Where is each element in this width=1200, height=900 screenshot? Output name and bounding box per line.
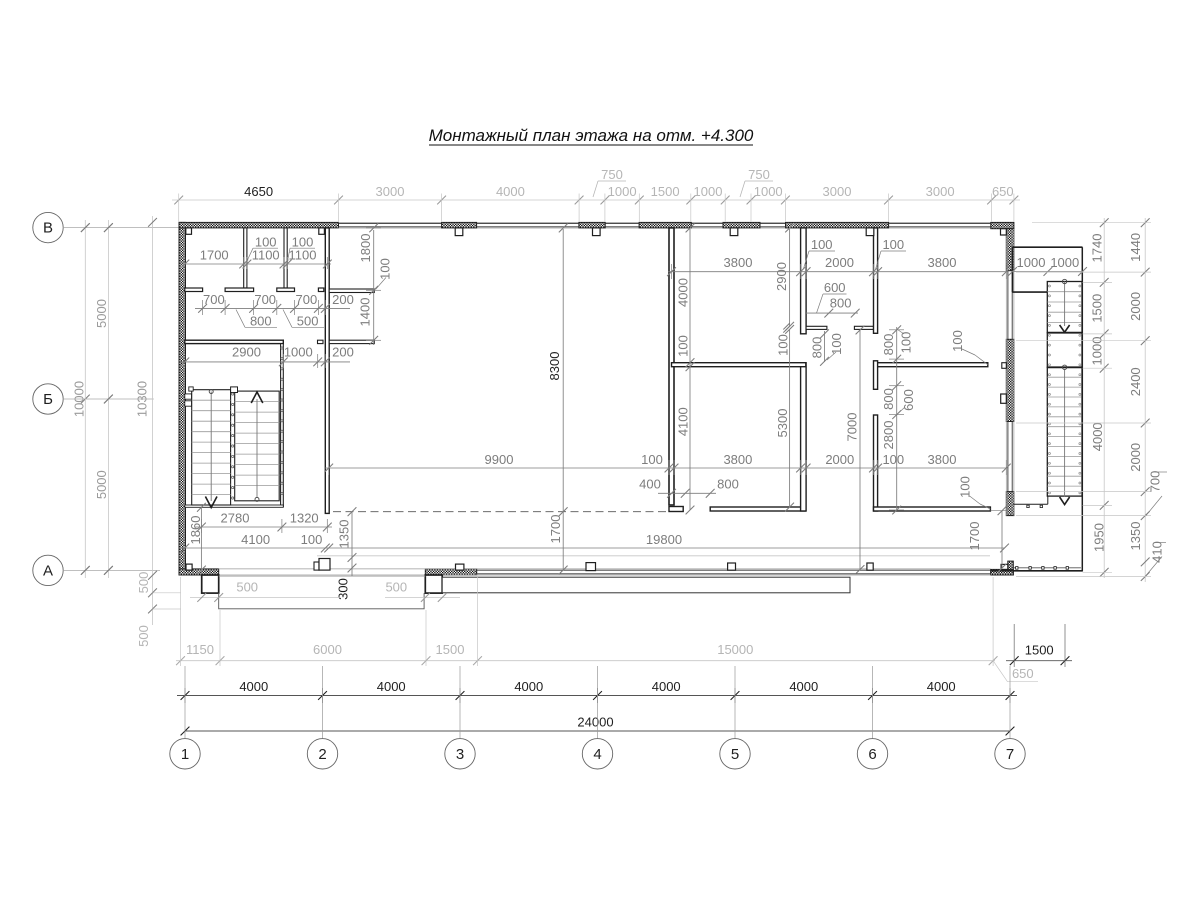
svg-text:100: 100 — [811, 237, 833, 252]
svg-text:3000: 3000 — [926, 184, 955, 199]
svg-text:2000: 2000 — [1128, 443, 1143, 472]
svg-text:1100: 1100 — [252, 248, 280, 263]
svg-text:1440: 1440 — [1128, 233, 1143, 262]
svg-text:2800: 2800 — [881, 421, 896, 450]
svg-text:4000: 4000 — [239, 679, 268, 694]
svg-text:1400: 1400 — [358, 298, 373, 327]
svg-text:700: 700 — [296, 292, 318, 307]
svg-text:800: 800 — [881, 334, 896, 356]
svg-text:4000: 4000 — [675, 278, 690, 307]
svg-text:5: 5 — [731, 746, 739, 763]
svg-text:1500: 1500 — [1090, 294, 1105, 323]
svg-text:1000: 1000 — [608, 184, 637, 199]
svg-text:10300: 10300 — [135, 381, 150, 417]
svg-text:2780: 2780 — [221, 510, 250, 525]
svg-text:8300: 8300 — [547, 352, 562, 381]
svg-text:1860: 1860 — [188, 516, 203, 545]
svg-text:500: 500 — [297, 314, 319, 329]
svg-text:3000: 3000 — [376, 184, 405, 199]
svg-text:4000: 4000 — [652, 679, 681, 694]
svg-text:3800: 3800 — [724, 255, 753, 270]
svg-text:9900: 9900 — [485, 452, 514, 467]
svg-text:700: 700 — [254, 292, 276, 307]
svg-text:100: 100 — [292, 235, 314, 250]
svg-text:1150: 1150 — [186, 642, 214, 657]
svg-text:4000: 4000 — [1090, 422, 1105, 451]
svg-text:1100: 1100 — [289, 248, 317, 263]
svg-text:1320: 1320 — [290, 510, 319, 525]
svg-text:4000: 4000 — [496, 184, 525, 199]
svg-text:3000: 3000 — [823, 184, 852, 199]
svg-text:6: 6 — [868, 746, 876, 763]
svg-text:1350: 1350 — [1128, 522, 1143, 551]
svg-text:400: 400 — [639, 477, 661, 492]
svg-text:200: 200 — [332, 292, 354, 307]
svg-text:700: 700 — [1148, 471, 1163, 493]
svg-text:А: А — [43, 562, 53, 579]
svg-text:5000: 5000 — [94, 470, 109, 499]
svg-text:1000: 1000 — [1017, 255, 1046, 270]
svg-text:100: 100 — [899, 332, 914, 354]
svg-text:1000: 1000 — [754, 184, 783, 199]
svg-text:600: 600 — [824, 280, 846, 295]
svg-text:15000: 15000 — [717, 642, 753, 657]
svg-text:750: 750 — [748, 167, 770, 182]
svg-text:4000: 4000 — [789, 679, 818, 694]
svg-text:800: 800 — [881, 388, 896, 410]
svg-text:200: 200 — [332, 344, 354, 359]
svg-text:100: 100 — [829, 333, 844, 355]
svg-text:100: 100 — [378, 258, 393, 280]
svg-text:100: 100 — [882, 237, 904, 252]
svg-text:1000: 1000 — [284, 344, 313, 359]
svg-text:4100: 4100 — [675, 407, 690, 436]
svg-text:Монтажный план этажа на отм. +: Монтажный план этажа на отм. +4.300 — [429, 126, 754, 145]
svg-text:1700: 1700 — [200, 248, 229, 263]
svg-text:800: 800 — [717, 477, 739, 492]
svg-text:1500: 1500 — [651, 184, 680, 199]
svg-text:1500: 1500 — [436, 642, 465, 657]
svg-text:7: 7 — [1006, 746, 1014, 763]
svg-text:4: 4 — [593, 746, 601, 763]
svg-text:100: 100 — [675, 335, 690, 357]
svg-text:1950: 1950 — [1092, 523, 1107, 552]
svg-text:4000: 4000 — [514, 679, 543, 694]
svg-text:3800: 3800 — [928, 452, 957, 467]
svg-text:1500: 1500 — [1025, 643, 1054, 658]
svg-text:100: 100 — [882, 452, 904, 467]
svg-text:100: 100 — [255, 235, 277, 250]
svg-text:4000: 4000 — [927, 679, 956, 694]
svg-text:100: 100 — [950, 330, 965, 352]
svg-text:4000: 4000 — [377, 679, 406, 694]
svg-text:800: 800 — [830, 296, 852, 311]
svg-text:Б: Б — [43, 391, 53, 408]
svg-text:2: 2 — [318, 746, 326, 763]
svg-text:7000: 7000 — [845, 413, 860, 442]
svg-text:2900: 2900 — [774, 262, 789, 291]
svg-text:500: 500 — [385, 580, 407, 595]
svg-text:750: 750 — [601, 167, 623, 182]
svg-text:1350: 1350 — [337, 520, 352, 549]
svg-text:300: 300 — [336, 578, 351, 600]
svg-text:1740: 1740 — [1090, 234, 1105, 263]
svg-text:650: 650 — [992, 184, 1014, 199]
svg-text:2000: 2000 — [825, 255, 854, 270]
svg-text:800: 800 — [810, 337, 825, 359]
svg-text:3800: 3800 — [928, 255, 957, 270]
svg-text:2400: 2400 — [1128, 367, 1143, 396]
svg-text:1700: 1700 — [548, 515, 563, 544]
svg-text:1000: 1000 — [694, 184, 723, 199]
svg-text:600: 600 — [901, 389, 916, 411]
svg-text:1700: 1700 — [967, 522, 982, 551]
svg-text:4100: 4100 — [241, 532, 270, 547]
svg-text:700: 700 — [203, 292, 225, 307]
svg-text:1000: 1000 — [1050, 255, 1079, 270]
svg-text:2000: 2000 — [825, 452, 854, 467]
svg-text:410: 410 — [1150, 541, 1165, 563]
svg-text:100: 100 — [958, 476, 973, 498]
svg-text:6000: 6000 — [313, 642, 342, 657]
svg-text:100: 100 — [301, 532, 323, 547]
svg-text:100: 100 — [776, 334, 791, 356]
svg-text:500: 500 — [236, 580, 258, 595]
svg-text:2000: 2000 — [1128, 292, 1143, 321]
svg-text:10000: 10000 — [71, 381, 86, 417]
svg-text:5300: 5300 — [775, 409, 790, 438]
svg-text:500: 500 — [136, 572, 151, 594]
svg-text:1: 1 — [181, 746, 189, 763]
svg-text:3: 3 — [456, 746, 464, 763]
svg-text:100: 100 — [641, 452, 663, 467]
svg-text:500: 500 — [136, 625, 151, 647]
svg-text:2900: 2900 — [232, 344, 261, 359]
svg-text:19800: 19800 — [646, 532, 682, 547]
svg-text:В: В — [43, 220, 53, 237]
svg-text:800: 800 — [250, 314, 272, 329]
svg-text:4650: 4650 — [244, 184, 273, 199]
svg-text:1800: 1800 — [358, 234, 373, 263]
svg-text:24000: 24000 — [577, 715, 613, 730]
svg-text:650: 650 — [1012, 666, 1034, 681]
svg-text:5000: 5000 — [94, 299, 109, 328]
svg-text:3800: 3800 — [723, 452, 752, 467]
